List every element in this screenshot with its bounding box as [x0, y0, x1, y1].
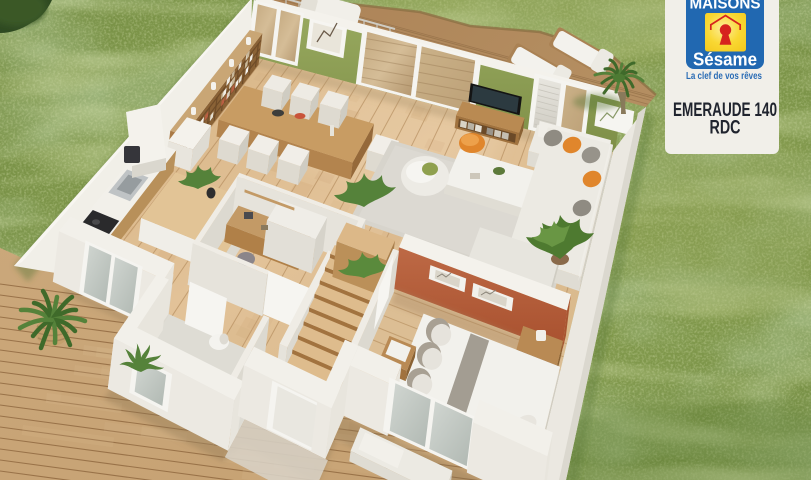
svg-text:RDC: RDC: [710, 118, 741, 139]
svg-text:La clef de vos rêves: La clef de vos rêves: [686, 71, 762, 82]
svg-text:Sésame: Sésame: [693, 50, 757, 70]
svg-text:MAISONS: MAISONS: [690, 0, 761, 13]
